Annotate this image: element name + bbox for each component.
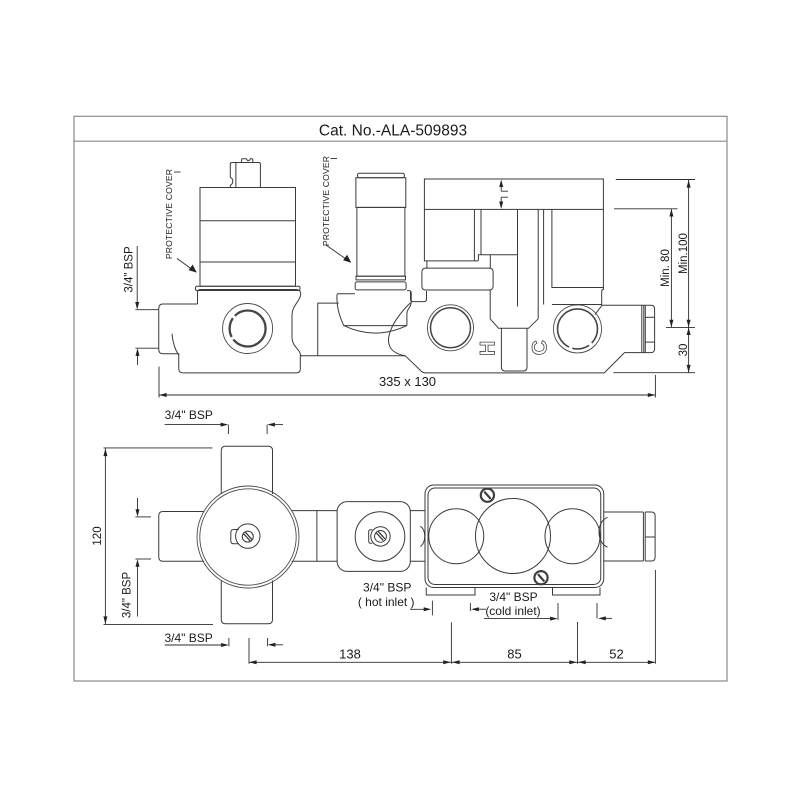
svg-text:3/4" BSP: 3/4" BSP <box>122 572 134 619</box>
svg-text:( hot inlet ): ( hot inlet ) <box>358 595 415 609</box>
svg-text:85: 85 <box>507 647 521 662</box>
svg-text:(cold inlet): (cold inlet) <box>485 604 540 618</box>
svg-text:30: 30 <box>678 344 690 357</box>
svg-text:Min. 80: Min. 80 <box>660 249 672 287</box>
svg-text:3/4" BSP: 3/4" BSP <box>489 590 537 604</box>
svg-text:3/4" BSP: 3/4" BSP <box>363 581 411 595</box>
svg-text:C: C <box>529 340 552 355</box>
svg-text:3/4" BSP: 3/4" BSP <box>164 631 212 645</box>
svg-text:PROTECTIVE COVER: PROTECTIVE COVER <box>321 156 331 246</box>
svg-text:Min.100: Min.100 <box>678 233 690 274</box>
svg-text:Cat. No.-ALA-509893: Cat. No.-ALA-509893 <box>319 123 467 140</box>
svg-text:PROTECTIVE COVER: PROTECTIVE COVER <box>164 169 174 259</box>
svg-text:52: 52 <box>609 647 623 662</box>
svg-text:H: H <box>477 341 500 356</box>
svg-text:3/4" BSP: 3/4" BSP <box>165 408 213 422</box>
svg-text:335 x 130: 335 x 130 <box>379 374 436 389</box>
svg-text:138: 138 <box>339 647 361 662</box>
svg-text:120: 120 <box>92 526 104 545</box>
svg-text:3/4" BSP: 3/4" BSP <box>124 246 136 293</box>
